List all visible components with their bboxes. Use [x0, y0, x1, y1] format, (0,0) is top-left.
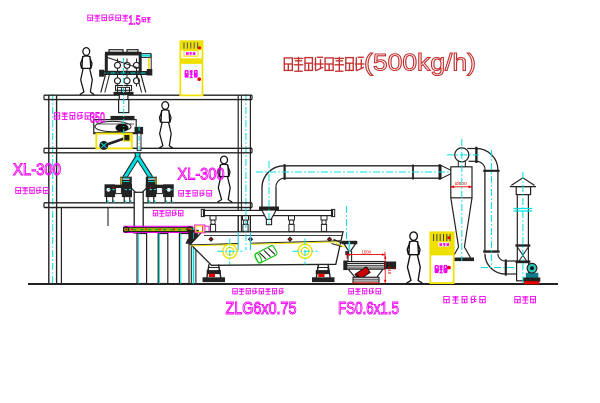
svg-text:XL-300: XL-300	[13, 160, 61, 179]
svg-text:ZLG6x0.75: ZLG6x0.75	[226, 298, 297, 318]
svg-text:(500kg/h): (500kg/h)	[364, 49, 476, 76]
svg-text:FS0.6x1.5: FS0.6x1.5	[338, 298, 399, 318]
svg-text:1.5: 1.5	[129, 13, 141, 28]
svg-text:350: 350	[90, 110, 105, 126]
svg-text:1500: 1500	[362, 249, 372, 254]
svg-text:XL-300: XL-300	[178, 165, 225, 184]
svg-text:548: 548	[387, 267, 392, 275]
svg-text:Ø500: Ø500	[455, 181, 467, 187]
